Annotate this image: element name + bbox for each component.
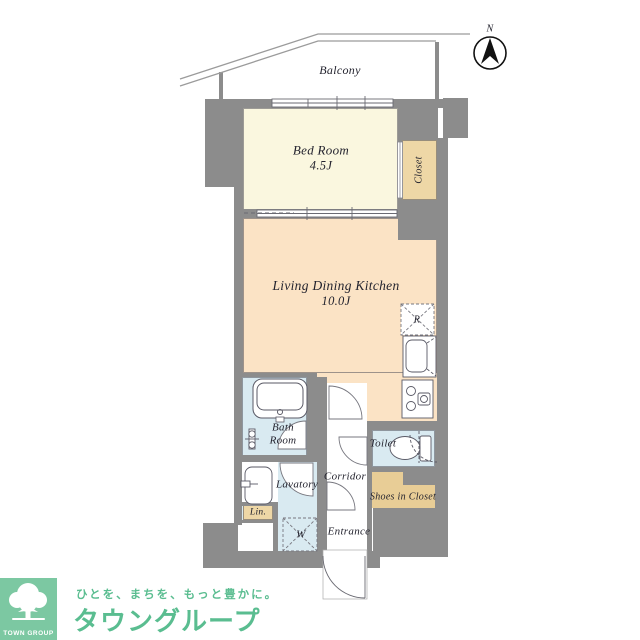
wall	[437, 138, 448, 430]
wall	[317, 377, 327, 553]
wall	[205, 99, 243, 187]
toilet-label: Toilet	[370, 438, 396, 451]
lavatory-label: Lavatory	[276, 479, 318, 492]
wall	[443, 98, 468, 138]
ldk-label: Living Dining Kitchen 10.0J	[272, 278, 399, 308]
north-arrow-icon	[474, 37, 506, 69]
wall	[238, 551, 323, 568]
wall	[234, 455, 322, 462]
linen-label: Lin.	[250, 508, 266, 519]
wall	[243, 209, 398, 218]
wall	[367, 421, 437, 430]
wall	[234, 187, 243, 377]
shoes-closet-floor-upper	[370, 472, 403, 486]
balcony-post	[219, 72, 223, 100]
bedroom-size: 4.5J	[293, 158, 349, 172]
entrance-label: Entrance	[328, 526, 371, 539]
brand-company-name: タウングループ	[73, 601, 260, 638]
brand-tagline: ひとを、まちを、もっと豊かに。	[76, 586, 278, 602]
washbasin-area	[240, 462, 278, 505]
refrigerator-label: R	[414, 314, 420, 326]
shoes-closet-label: Shoes in Closet	[370, 491, 436, 503]
wall	[398, 99, 438, 140]
wall	[307, 377, 317, 459]
wall	[398, 108, 402, 211]
compass-label: N	[487, 23, 494, 35]
balcony-post	[435, 42, 439, 100]
wall	[403, 467, 435, 485]
wall	[398, 200, 448, 240]
town-group-logo: TOWN GROUP	[0, 578, 57, 640]
bathroom-label: Bath Room	[260, 421, 306, 446]
wall	[273, 523, 278, 553]
tree-icon	[0, 578, 57, 628]
floor-plan: Balcony N Bed Room 4.5J Closet Living Di…	[0, 0, 640, 640]
bedroom-label: Bed Room 4.5J	[293, 143, 349, 172]
balcony-label: Balcony	[319, 64, 360, 78]
closet-label: Closet	[413, 156, 425, 183]
bedroom-name: Bed Room	[293, 143, 349, 158]
below-linen-closet	[240, 523, 273, 553]
ldk-size: 10.0J	[272, 294, 399, 308]
ldk-name: Living Dining Kitchen	[272, 278, 399, 294]
entrance-door-icon	[323, 550, 367, 599]
logo-caption: TOWN GROUP	[0, 630, 57, 637]
wall	[203, 523, 238, 568]
corridor-label: Corridor	[324, 471, 366, 484]
washer-label: W	[296, 529, 305, 542]
wall	[242, 373, 317, 377]
balcony-railing	[180, 34, 470, 86]
wall	[435, 430, 448, 517]
